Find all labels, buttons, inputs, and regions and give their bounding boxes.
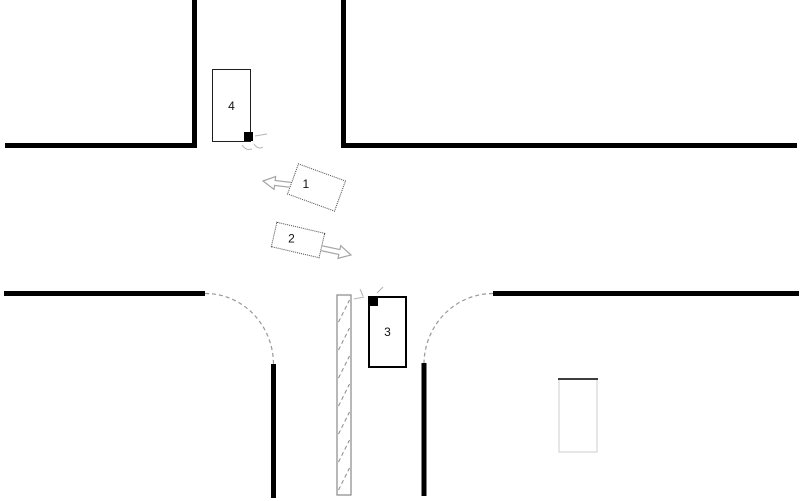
- scratch-mark-v4-a: [255, 134, 267, 136]
- scratch-marks: [242, 134, 383, 299]
- crosswalk-strip: [337, 295, 351, 495]
- scratch-mark-v3-c: [377, 287, 383, 293]
- scratch-mark-v4-c: [254, 144, 263, 148]
- scratch-mark-v3-a: [354, 297, 364, 299]
- vehicle-3-label: 3: [384, 326, 391, 338]
- collision-diagram: 1 2 3 4: [0, 0, 800, 501]
- road-edges: [4, 0, 799, 498]
- vehicle-4-label: 4: [228, 100, 235, 112]
- scratch-mark-v3-b: [360, 289, 363, 296]
- impact-marker-vehicle-4: [244, 132, 253, 141]
- diagram-canvas: [0, 0, 800, 501]
- corner-curve-left: [205, 293, 274, 364]
- crosswalk-outline: [337, 295, 351, 495]
- ghost-vehicle-box: [558, 379, 598, 452]
- scratch-mark-v4-b: [242, 145, 252, 150]
- corner-curve-right: [424, 294, 493, 364]
- vehicle-3-box: 3: [368, 296, 407, 368]
- ghost-box-outline: [559, 379, 597, 452]
- vehicle-2-label: 2: [288, 233, 295, 245]
- impact-marker-vehicle-3: [369, 297, 378, 306]
- vehicle-1-label: 1: [303, 178, 310, 190]
